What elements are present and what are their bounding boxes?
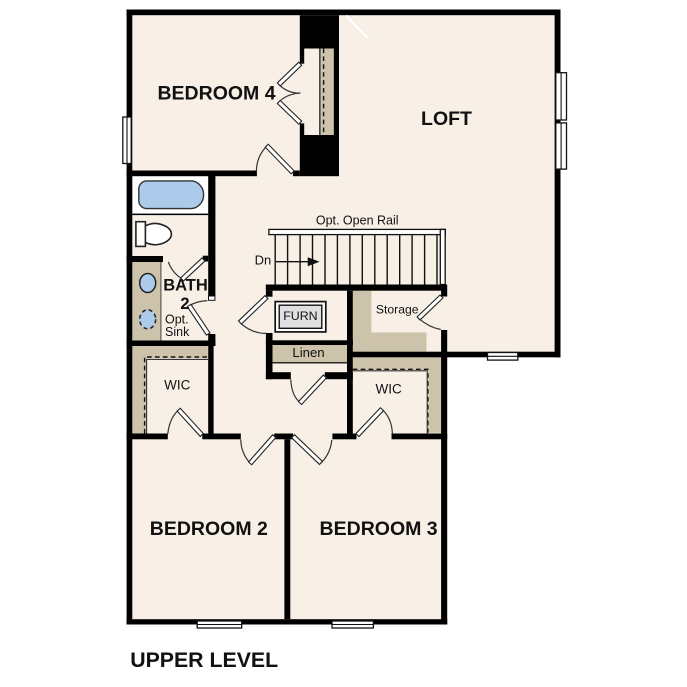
svg-text:BEDROOM 2: BEDROOM 2 [150,518,268,540]
svg-text:Linen: Linen [292,345,324,360]
svg-text:UPPER LEVEL: UPPER LEVEL [130,648,278,672]
svg-text:Sink: Sink [165,325,190,339]
svg-text:Dn: Dn [255,253,272,268]
svg-text:WIC: WIC [164,378,190,393]
svg-text:Opt. Open Rail: Opt. Open Rail [316,214,399,228]
svg-text:2: 2 [180,295,189,313]
svg-text:FURN: FURN [283,309,317,323]
svg-text:Storage: Storage [376,302,419,316]
svg-text:LOFT: LOFT [421,108,472,130]
svg-text:BEDROOM 3: BEDROOM 3 [320,518,438,540]
svg-text:WIC: WIC [375,381,401,396]
svg-text:BATH: BATH [163,277,208,295]
svg-text:BEDROOM 4: BEDROOM 4 [157,83,275,105]
